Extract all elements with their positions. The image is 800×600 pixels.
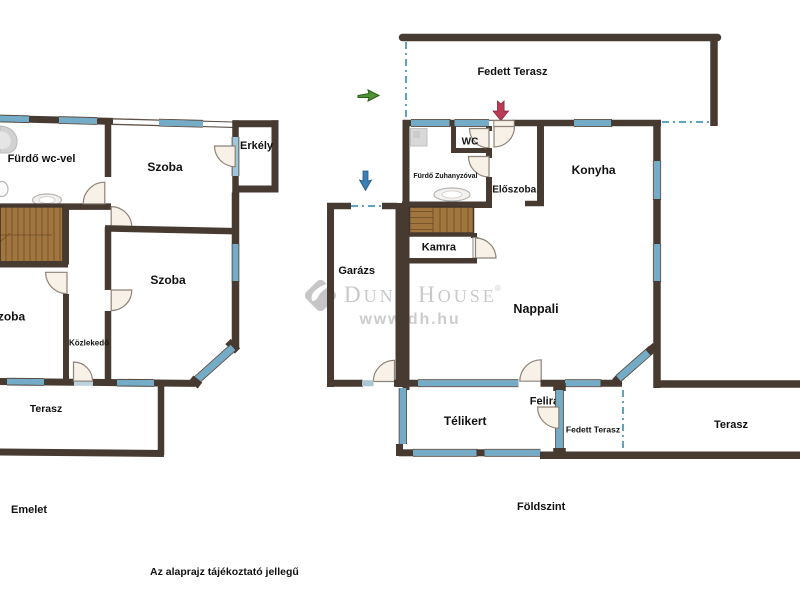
svg-text:Terasz: Terasz [30,403,63,415]
svg-text:Fedett Terasz: Fedett Terasz [566,425,620,435]
svg-text:Közlekedő: Közlekedő [69,339,109,348]
svg-text:Az alaprajz tájékoztató jelleg: Az alaprajz tájékoztató jellegű [150,566,299,578]
svg-text:Földszint: Földszint [517,501,566,513]
svg-text:Fürdő Zuhanyzóval: Fürdő Zuhanyzóval [413,173,477,180]
svg-text:WC: WC [462,137,479,148]
svg-text:Nappali: Nappali [513,302,558,316]
svg-text:Kamra: Kamra [422,242,457,254]
svg-text:®: ® [495,284,501,293]
svg-text:Fedett Terasz: Fedett Terasz [477,66,548,78]
svg-text:Szoba: Szoba [150,273,186,287]
svg-text:Konyha: Konyha [572,163,616,177]
svg-text:Szoba: Szoba [0,310,25,324]
svg-text:Emelet: Emelet [11,504,47,516]
svg-text:Garázs: Garázs [338,265,375,277]
svg-text:Terasz: Terasz [714,419,749,431]
svg-text:Szoba: Szoba [147,160,183,174]
svg-text:Fürdő wc-vel: Fürdő wc-vel [8,153,76,165]
svg-text:Télikert: Télikert [444,414,487,428]
svg-text:DUNA HOUSE: DUNA HOUSE [344,282,497,307]
svg-text:Erkély: Erkély [240,140,274,152]
svg-text:Előszoba: Előszoba [492,185,536,196]
